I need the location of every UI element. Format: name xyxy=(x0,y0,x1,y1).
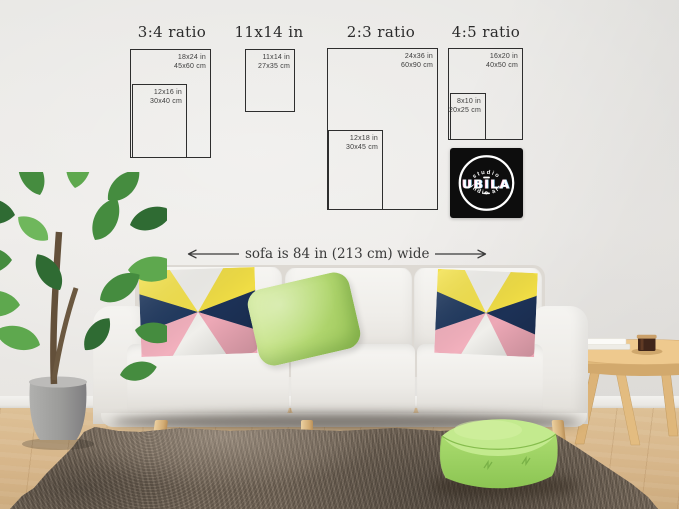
size-label-12x18: 12x18 in 30x45 cm xyxy=(346,134,378,152)
table-leg xyxy=(661,370,678,436)
geometric-pillow-right xyxy=(434,269,538,357)
size-in: 8x10 in xyxy=(449,97,481,106)
logo-name: UBILA xyxy=(462,177,511,191)
size-cm: 60x90 cm xyxy=(401,61,433,70)
candle-glass-highlight xyxy=(641,339,644,350)
brand-logo: studio UBILA UBILA UBILA indie art xyxy=(450,148,523,218)
size-rect-12x18: 12x18 in 30x45 cm xyxy=(328,130,383,210)
width-arrow-right-icon xyxy=(435,249,488,259)
size-cm: 20x25 cm xyxy=(449,106,481,115)
sofa-width-annotation: sofa is 84 in (213 cm) wide xyxy=(186,243,472,265)
size-label-24x36: 24x36 in 60x90 cm xyxy=(401,52,433,70)
size-in: 16x20 in xyxy=(486,52,518,61)
size-label-18x24: 18x24 in 45x60 cm xyxy=(174,53,206,71)
living-room-mockup: 3:4 ratio 18x24 in 45x60 cm 12x16 in 30x… xyxy=(0,0,679,509)
width-arrow-left-icon xyxy=(186,249,239,259)
pouf-highlight xyxy=(454,420,522,440)
sofa-width-text: sofa is 84 in (213 cm) wide xyxy=(245,246,429,262)
size-cm: 30x40 cm xyxy=(150,97,182,106)
size-label-16x20: 16x20 in 40x50 cm xyxy=(486,52,518,70)
pot-rim xyxy=(29,377,87,388)
green-pouf xyxy=(426,392,572,496)
size-rect-12x16: 12x16 in 30x40 cm xyxy=(132,84,187,158)
size-cm: 30x45 cm xyxy=(346,143,378,152)
size-cm: 40x50 cm xyxy=(486,61,518,70)
ratio-title-2-3: 2:3 ratio xyxy=(347,23,415,41)
size-cm: 45x60 cm xyxy=(174,62,206,71)
potted-plant xyxy=(0,172,167,462)
plant-leaves xyxy=(0,172,167,383)
brand-logo-badge: studio UBILA UBILA UBILA indie art xyxy=(450,148,523,218)
size-rect-11x14: 11x14 in 27x35 cm xyxy=(245,49,295,112)
ratio-title-11x14: 11x14 in xyxy=(234,23,303,41)
size-rect-8x10: 8x10 in 20x25 cm xyxy=(450,93,486,140)
size-label-8x10: 8x10 in 20x25 cm xyxy=(449,97,481,115)
size-label-12x16: 12x16 in 30x40 cm xyxy=(150,88,182,106)
plant-pot xyxy=(29,382,86,440)
size-in: 11x14 in xyxy=(258,53,290,62)
candle-lid xyxy=(637,335,657,339)
size-cm: 27x35 cm xyxy=(258,62,290,71)
ratio-title-4-5: 4:5 ratio xyxy=(452,23,520,41)
size-in: 12x16 in xyxy=(150,88,182,97)
size-in: 18x24 in xyxy=(174,53,206,62)
table-leg xyxy=(616,372,640,445)
pillow-shading xyxy=(434,269,538,357)
size-in: 24x36 in xyxy=(401,52,433,61)
size-label-11x14: 11x14 in 27x35 cm xyxy=(258,53,290,71)
size-in: 12x18 in xyxy=(346,134,378,143)
ratio-title-3-4: 3:4 ratio xyxy=(138,23,206,41)
